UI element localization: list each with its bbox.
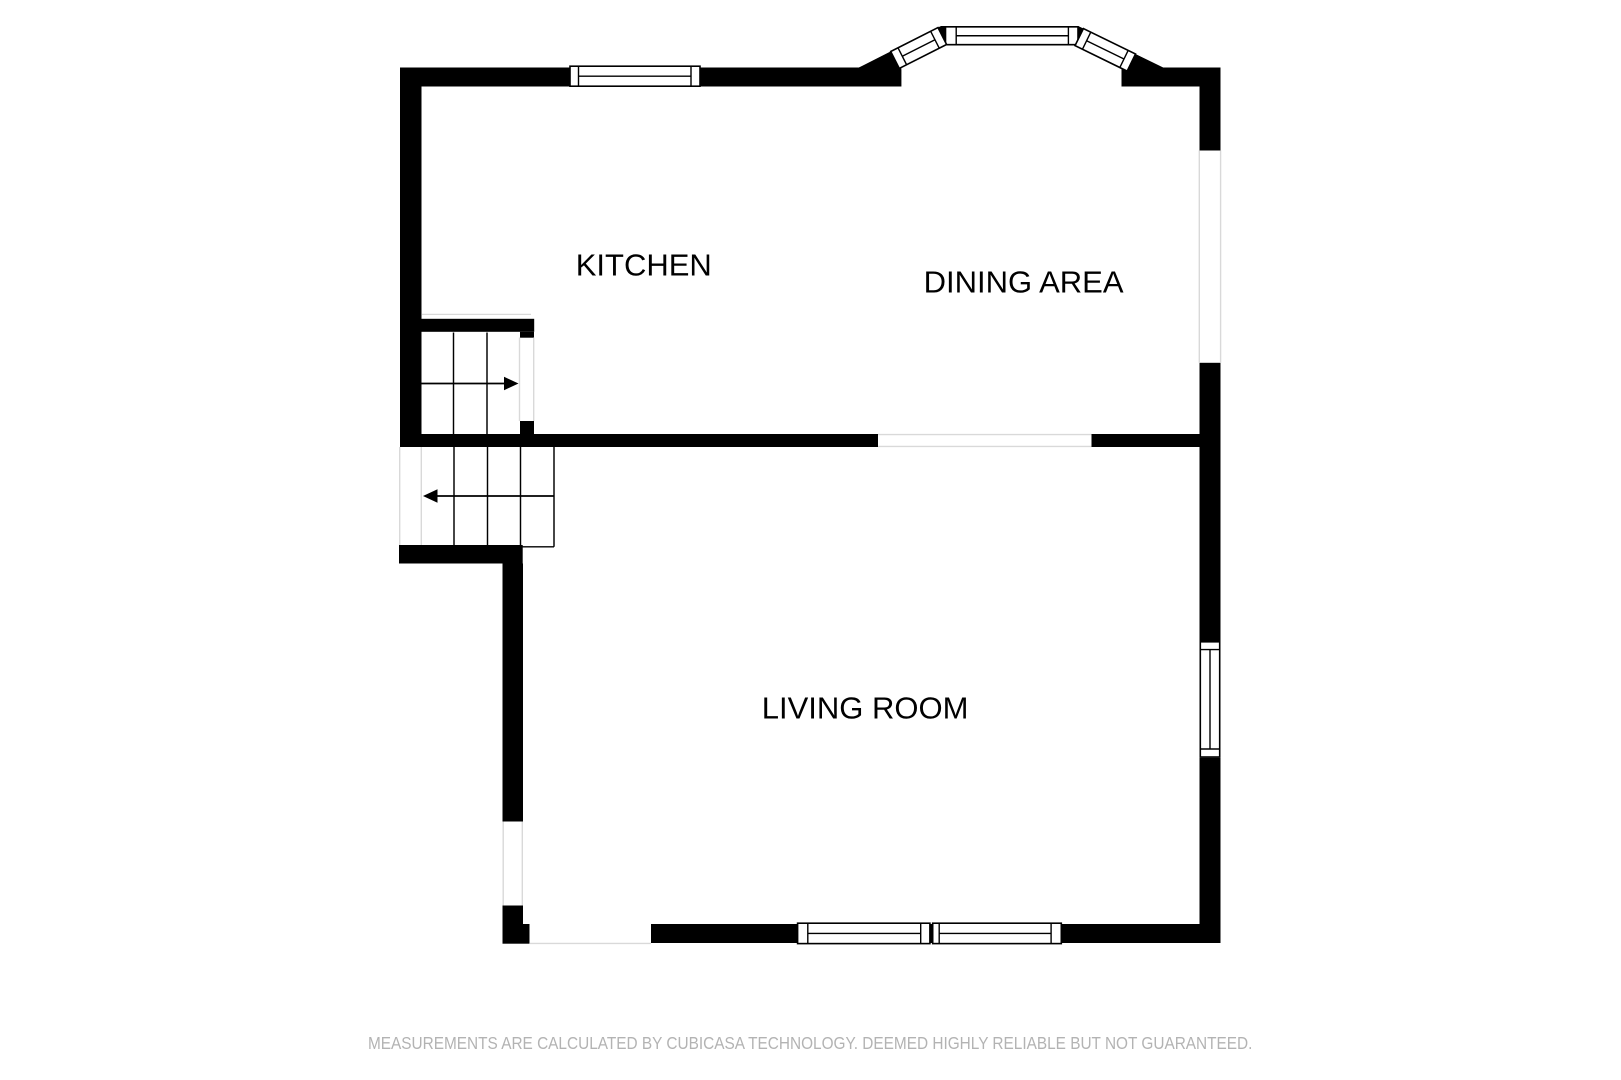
svg-text:DINING AREA: DINING AREA bbox=[924, 264, 1124, 299]
svg-text:KITCHEN: KITCHEN bbox=[576, 248, 712, 283]
svg-text:MEASUREMENTS ARE CALCULATED BY: MEASUREMENTS ARE CALCULATED BY CUBICASA … bbox=[368, 1033, 1253, 1053]
svg-text:LIVING ROOM: LIVING ROOM bbox=[762, 691, 969, 726]
